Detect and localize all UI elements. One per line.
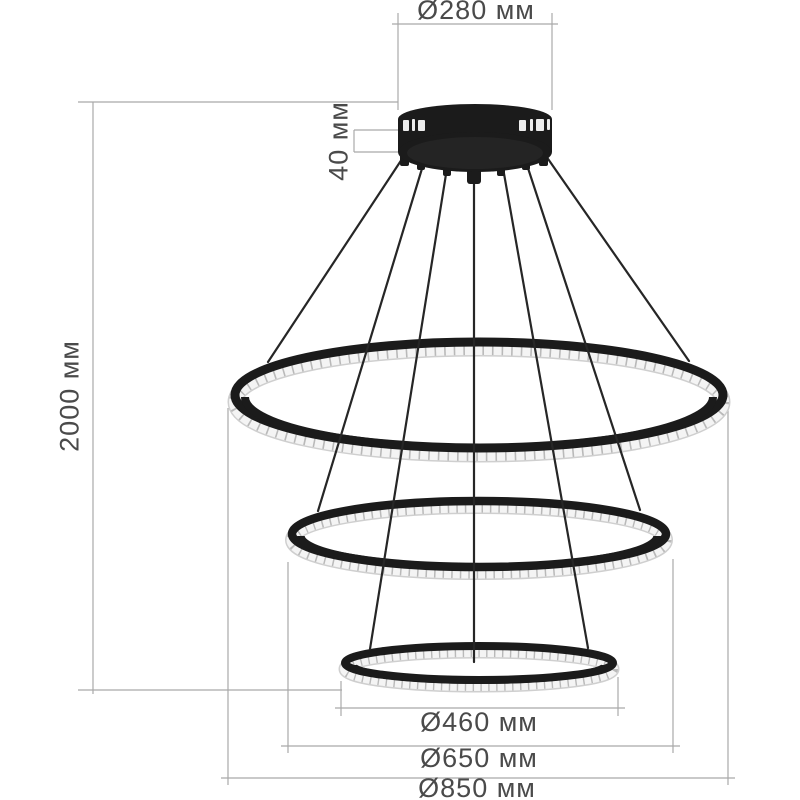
vent-slot-icon: [530, 119, 533, 131]
suspension-height-label: 2000 мм: [54, 340, 84, 452]
wire-outer-ring-right: [546, 156, 689, 361]
canopy-height-label: 40 мм: [323, 101, 353, 181]
suspension-wires: [268, 156, 689, 662]
outer-ring: [235, 342, 723, 455]
wire-outer-ring-left: [268, 156, 404, 362]
canopy-diameter-label: Ø280 мм: [417, 0, 535, 25]
middle-ring: [292, 501, 666, 573]
vent-slot-icon: [412, 119, 415, 131]
small-ring-diameter-label: Ø460 мм: [420, 707, 538, 737]
dimension-drawing-page: Ø280 мм 40 мм 2000 мм Ø460 мм Ø650 мм Ø8…: [0, 0, 800, 800]
inner-ring: [345, 646, 613, 686]
outer-ring-crystal-band: [235, 349, 723, 455]
vent-slot-icon: [536, 119, 544, 131]
vent-slot-icon: [418, 120, 425, 131]
vent-slot-icon: [403, 120, 409, 131]
chandelier-dimension-drawing: Ø280 мм 40 мм 2000 мм Ø460 мм Ø650 мм Ø8…: [0, 0, 800, 800]
large-ring-diameter-label: Ø850 мм: [418, 773, 536, 800]
vent-slot-icon: [547, 119, 550, 130]
canopy-bottom-face: [407, 137, 543, 169]
inner-ring-inner-rim: [353, 665, 605, 681]
middle-ring-diameter-label: Ø650 мм: [420, 743, 538, 773]
vent-slot-icon: [519, 120, 526, 131]
